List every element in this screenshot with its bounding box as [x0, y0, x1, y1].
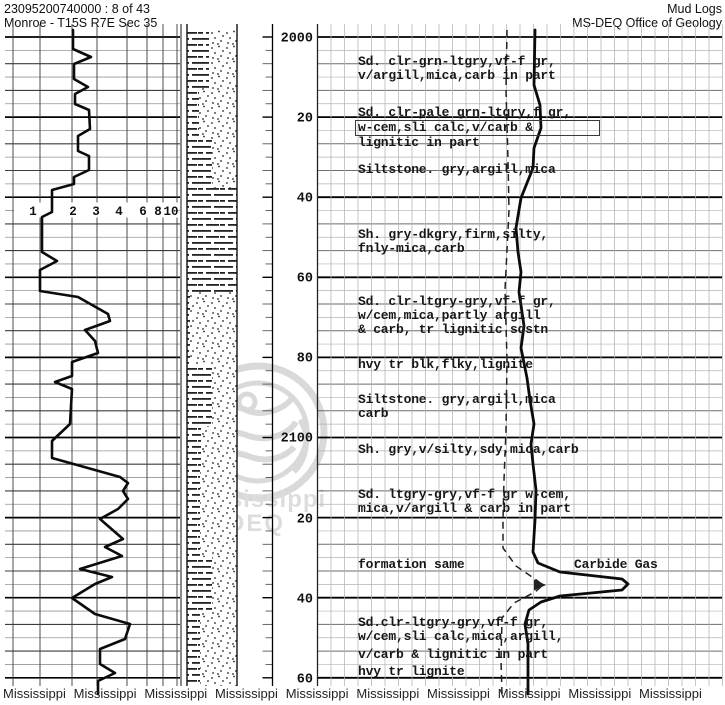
depth-label: 80: [297, 352, 313, 367]
description-line: lignitic in part: [358, 136, 600, 150]
lithology-description: Sd. clr-pale grn-ltgry,f gr,w-cem,sli ca…: [358, 106, 600, 150]
depth-label: 60: [297, 272, 313, 287]
lithology-description: Sh. gry-dkgry,firm,silty,fnly-mica,carb: [358, 228, 548, 256]
description-line: v/carb & lignitic in part: [358, 648, 548, 662]
footer-watermark: Mississippi: [215, 686, 278, 701]
description-line: v/argill,mica,carb in part: [358, 69, 556, 83]
description-line: Sd. clr-ltgry-gry,vf-f gr,: [358, 295, 556, 309]
carbide-gas-label: Carbide Gas: [574, 558, 658, 572]
depth-label: 20: [297, 112, 313, 127]
lithology-column: [187, 24, 237, 686]
footer-watermark: Mississippi: [427, 686, 490, 701]
mudlog-page: 23095200740000 : 8 of 43 Monroe - T15S R…: [0, 0, 725, 705]
shale-band: [187, 365, 212, 426]
description-line: Siltstone. gry,argill,mica: [358, 393, 556, 407]
left-gas-curve: [40, 30, 130, 694]
shale-band: [187, 612, 200, 686]
sand-band: [190, 292, 237, 365]
description-line: formation same: [358, 558, 464, 572]
description-line: Siltstone. gry,argill,mica: [358, 163, 556, 177]
depth-tick-column: [263, 24, 273, 686]
depth-label: 20: [297, 513, 313, 528]
lithology-description: v/carb & lignitic in part: [358, 648, 548, 662]
shale-band: [187, 88, 199, 140]
sand-band: [212, 365, 237, 426]
lithology-description: Siltstone. gry,argill,mica: [358, 163, 556, 177]
description-line: Sh. gry-dkgry,firm,silty,: [358, 228, 548, 242]
description-line: Sd. ltgry-gry,vf-f gr w-cem,: [358, 488, 571, 502]
description-line: w-cem,sli calc,v/carb &: [355, 120, 600, 136]
depth-label: 40: [297, 192, 313, 207]
sand-band: [212, 140, 237, 188]
footer-watermark-row: MississippiMississippiMississippiMississ…: [3, 686, 702, 701]
seal-eagle-head: [239, 394, 255, 410]
lithology-description: Sd. clr-ltgry-gry,vf-f gr,w/cem,mica,par…: [358, 295, 556, 337]
scale-label: 10: [163, 205, 178, 219]
description-line: mica,v/argill & carb in part: [358, 502, 571, 516]
footer-watermark: Mississippi: [639, 686, 702, 701]
description-line: & carb, tr lignitic sdstn: [358, 323, 556, 337]
scale-label: 1: [29, 205, 37, 219]
description-line: hvy tr blk,flky,lignite: [358, 358, 533, 372]
footer-watermark: Mississippi: [356, 686, 419, 701]
depth-label: 2100: [281, 432, 313, 447]
footer-watermark: Mississippi: [286, 686, 349, 701]
shale-band: [187, 30, 209, 88]
sand-band: [201, 426, 237, 470]
footer-watermark: Mississippi: [568, 686, 631, 701]
shale-band: [187, 470, 200, 557]
scale-label: 2: [69, 205, 77, 219]
depth-scale-labels: 200020406080210020406012346810: [14, 32, 313, 688]
scale-label: 6: [139, 205, 147, 219]
lithology-description: hvy tr blk,flky,lignite: [358, 358, 533, 372]
scale-label: 3: [92, 205, 100, 219]
footer-watermark: Mississippi: [144, 686, 207, 701]
lithology-description: Siltstone. gry,argill,micacarb: [358, 393, 556, 421]
description-line: Sd. clr-pale grn-ltgry,f gr,: [358, 106, 600, 120]
footer-watermark: Mississippi: [74, 686, 137, 701]
shale-band: [187, 557, 212, 612]
description-line: fnly-mica,carb: [358, 242, 548, 256]
depth-label: 40: [297, 593, 313, 608]
description-line: w/cem,mica,partly argill: [358, 309, 556, 323]
lithology-description: formation same: [358, 558, 464, 572]
footer-watermark: Mississippi: [3, 686, 66, 701]
sand-band: [200, 612, 237, 686]
description-line: Sh. gry,v/silty,sdy,mica,carb: [358, 443, 578, 457]
description-line: w/cem,sli calc,mica,argill,: [358, 630, 563, 644]
sand-band: [209, 30, 237, 88]
lithology-description: Sd. clr-grn-ltgry,vf-f gr,v/argill,mica,…: [358, 55, 556, 83]
scale-label: 4: [115, 205, 123, 219]
lithology-description: hvy tr lignite: [358, 665, 464, 679]
sand-band: [200, 470, 237, 557]
description-line: Sd. clr-grn-ltgry,vf-f gr,: [358, 55, 556, 69]
description-line: carb: [358, 407, 556, 421]
footer-watermark: Mississippi: [498, 686, 561, 701]
lithology-description: Sh. gry,v/silty,sdy,mica,carb: [358, 443, 578, 457]
depth-label: 2000: [281, 32, 313, 47]
sand-band: [212, 557, 237, 612]
lithology-description: Sd. ltgry-gry,vf-f gr w-cem,mica,v/argil…: [358, 488, 571, 516]
description-line: Sd.clr-ltgry-gry,vf-f gr,: [358, 616, 563, 630]
dashed-curve-arrowhead: [534, 580, 546, 591]
shale-band: [187, 188, 237, 292]
scale-label: 8: [154, 205, 162, 219]
lithology-description: Sd.clr-ltgry-gry,vf-f gr,w/cem,sli calc,…: [358, 616, 563, 644]
description-line: hvy tr lignite: [358, 665, 464, 679]
shale-band: [187, 426, 201, 470]
shale-band: [187, 140, 212, 188]
sand-band: [199, 88, 237, 140]
